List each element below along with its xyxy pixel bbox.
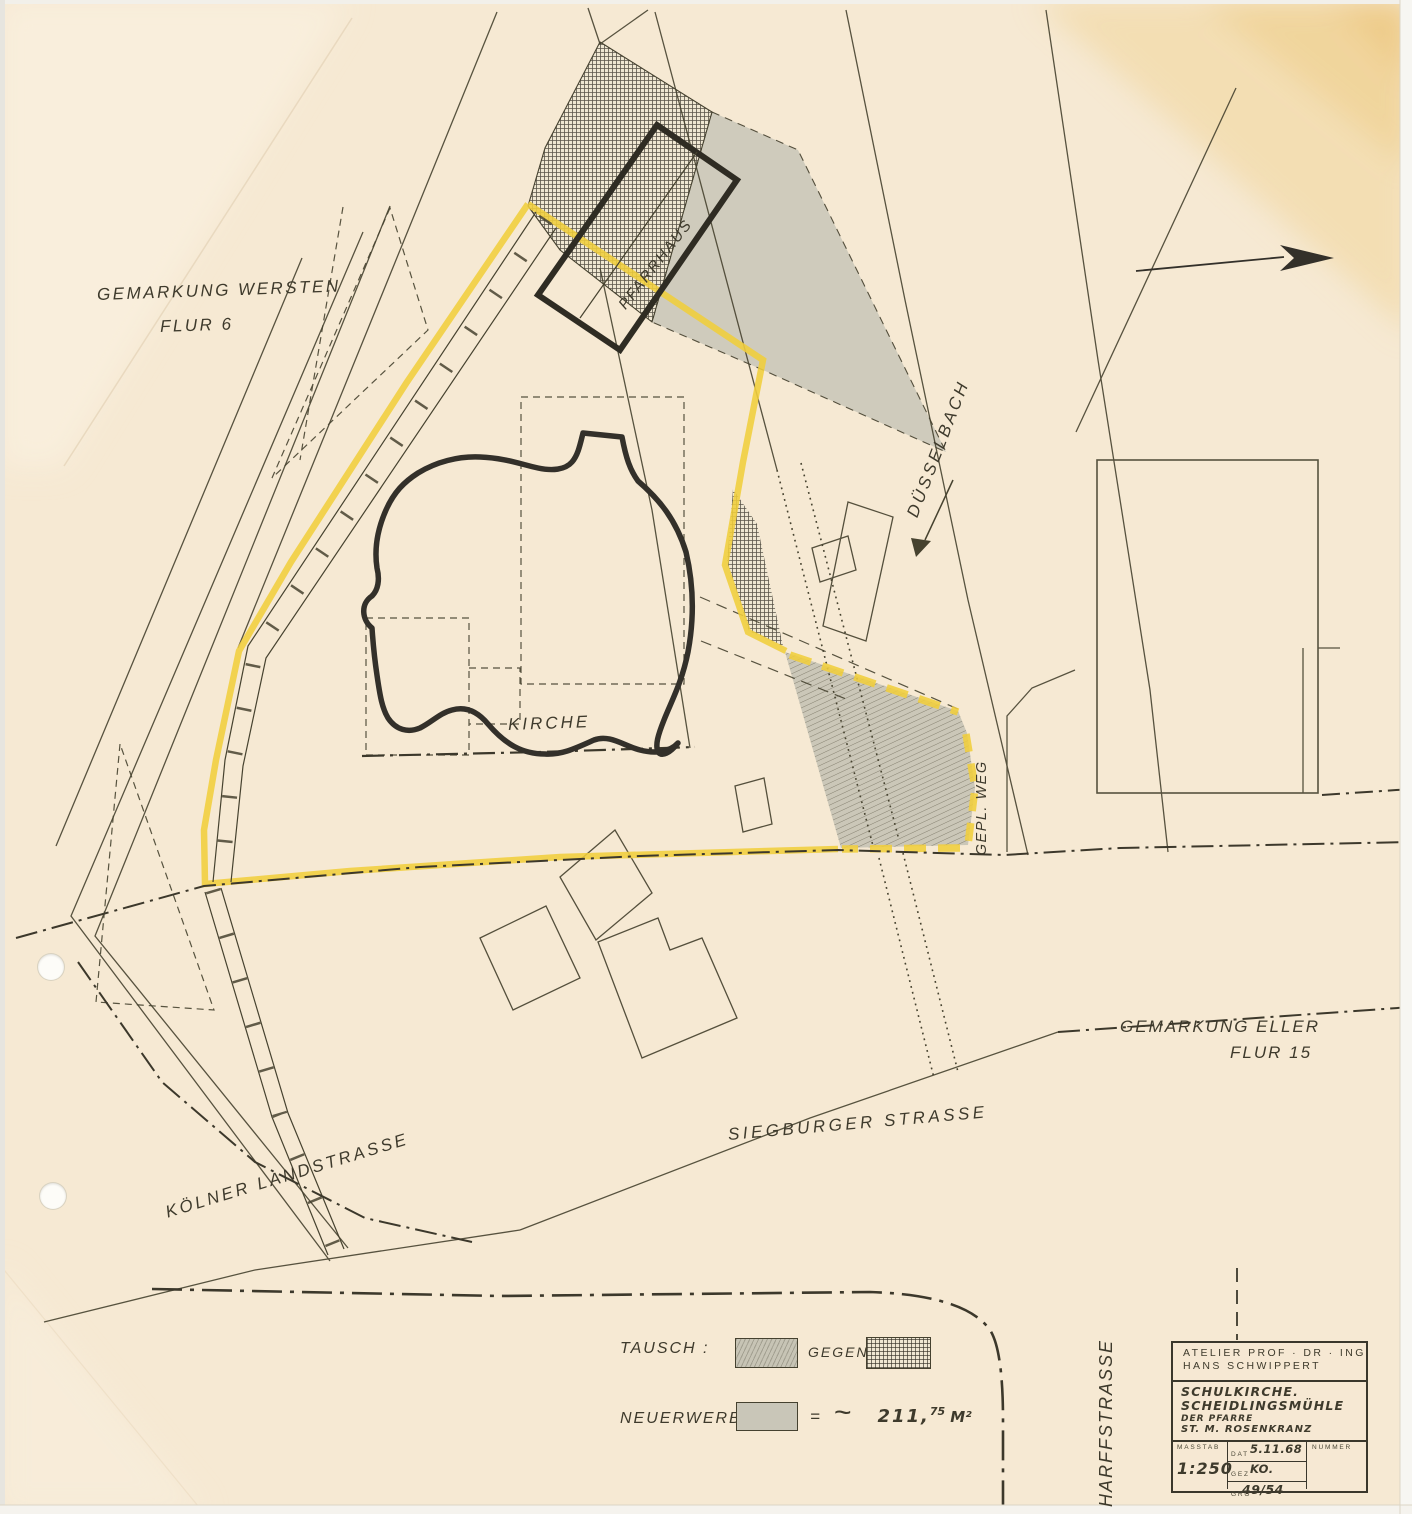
atelier-line1: ATELIER PROF · DR · ING bbox=[1183, 1347, 1366, 1360]
equals-sign: = bbox=[810, 1407, 820, 1427]
church-building-outline bbox=[364, 433, 693, 754]
masstab-label: MASSTAB bbox=[1177, 1444, 1227, 1451]
area-number: 211, bbox=[877, 1406, 929, 1427]
title-block-atelier: ATELIER PROF · DR · ING HANS SCHWIPPERT bbox=[1173, 1343, 1366, 1382]
title-block-table: MASSTAB 1:250 DAT 5.11.68 GEZ KO. GRO 49… bbox=[1173, 1442, 1366, 1489]
date-drawn-cells: DAT 5.11.68 GEZ KO. GRO 49/54 bbox=[1228, 1442, 1307, 1489]
legend-tausch-label: TAUSCH : bbox=[620, 1340, 709, 1358]
area-unit: M² bbox=[950, 1408, 972, 1426]
approx-tilde: ~ bbox=[834, 1406, 852, 1420]
gez-value: KO. bbox=[1250, 1462, 1274, 1476]
gro-value: 49/54 bbox=[1242, 1482, 1284, 1497]
project-line3: DER PFARRE bbox=[1181, 1414, 1366, 1424]
site-plan-sheet: GEMARKUNG WERSTEN FLUR 6 PFARRHAUS DÜSSE… bbox=[0, 0, 1412, 1514]
area-exponent: 75 bbox=[930, 1405, 945, 1418]
gez-label: GEZ bbox=[1231, 1471, 1250, 1478]
new-acquisition-area bbox=[785, 652, 975, 848]
masstab-value: 1:250 bbox=[1177, 1459, 1227, 1478]
label-gemarkung-wersten-flur: FLUR 6 bbox=[160, 315, 234, 335]
dat-cell: DAT 5.11.68 bbox=[1228, 1442, 1306, 1462]
label-kirche: KIRCHE bbox=[508, 713, 591, 733]
legend-neuerwerb-swatch bbox=[736, 1402, 798, 1431]
project-line2: SCHEIDLINGSMÜHLE bbox=[1181, 1399, 1366, 1413]
label-harffstrasse: HARFFSTRASSE bbox=[1097, 1339, 1115, 1507]
label-gemarkung-eller: GEMARKUNG ELLER bbox=[1120, 1018, 1320, 1035]
nummer-label: NUMMER bbox=[1312, 1444, 1366, 1451]
dat-label: DAT bbox=[1231, 1451, 1249, 1458]
hole-punch bbox=[40, 1183, 66, 1209]
number-cell: NUMMER bbox=[1307, 1442, 1366, 1489]
gez-cell: GEZ KO. bbox=[1228, 1462, 1306, 1482]
title-block-project: SCHULKIRCHE. SCHEIDLINGSMÜHLE DER PFARRE… bbox=[1173, 1382, 1366, 1442]
title-block: ATELIER PROF · DR · ING HANS SCHWIPPERT … bbox=[1171, 1341, 1368, 1493]
legend-neuerwerb-value: = ~ 211, 75 M² bbox=[810, 1406, 972, 1427]
project-line4: ST. M. ROSENKRANZ bbox=[1181, 1424, 1366, 1435]
legend-gegen-swatch bbox=[866, 1337, 931, 1369]
dat-value: 5.11.68 bbox=[1250, 1442, 1302, 1456]
north-arrow bbox=[1136, 245, 1334, 271]
label-gemarkung-eller-flur: FLUR 15 bbox=[1230, 1044, 1312, 1061]
legend-gegen-label: GEGEN bbox=[808, 1344, 869, 1360]
legend-neuerwerb-label: NEUERWERB: bbox=[620, 1410, 748, 1428]
survey-ladder-strip bbox=[205, 212, 556, 1255]
label-gepl-weg: GEPL. WEG bbox=[975, 760, 990, 855]
atelier-line2: HANS SCHWIPPERT bbox=[1183, 1360, 1366, 1373]
site-plan-drawing bbox=[0, 0, 1412, 1514]
scale-cell: MASSTAB 1:250 bbox=[1173, 1442, 1228, 1489]
project-line1: SCHULKIRCHE. bbox=[1181, 1385, 1366, 1399]
legend-tausch-swatch bbox=[735, 1338, 798, 1368]
gro-cell: GRO 49/54 bbox=[1228, 1482, 1306, 1501]
hole-punch bbox=[38, 954, 64, 980]
